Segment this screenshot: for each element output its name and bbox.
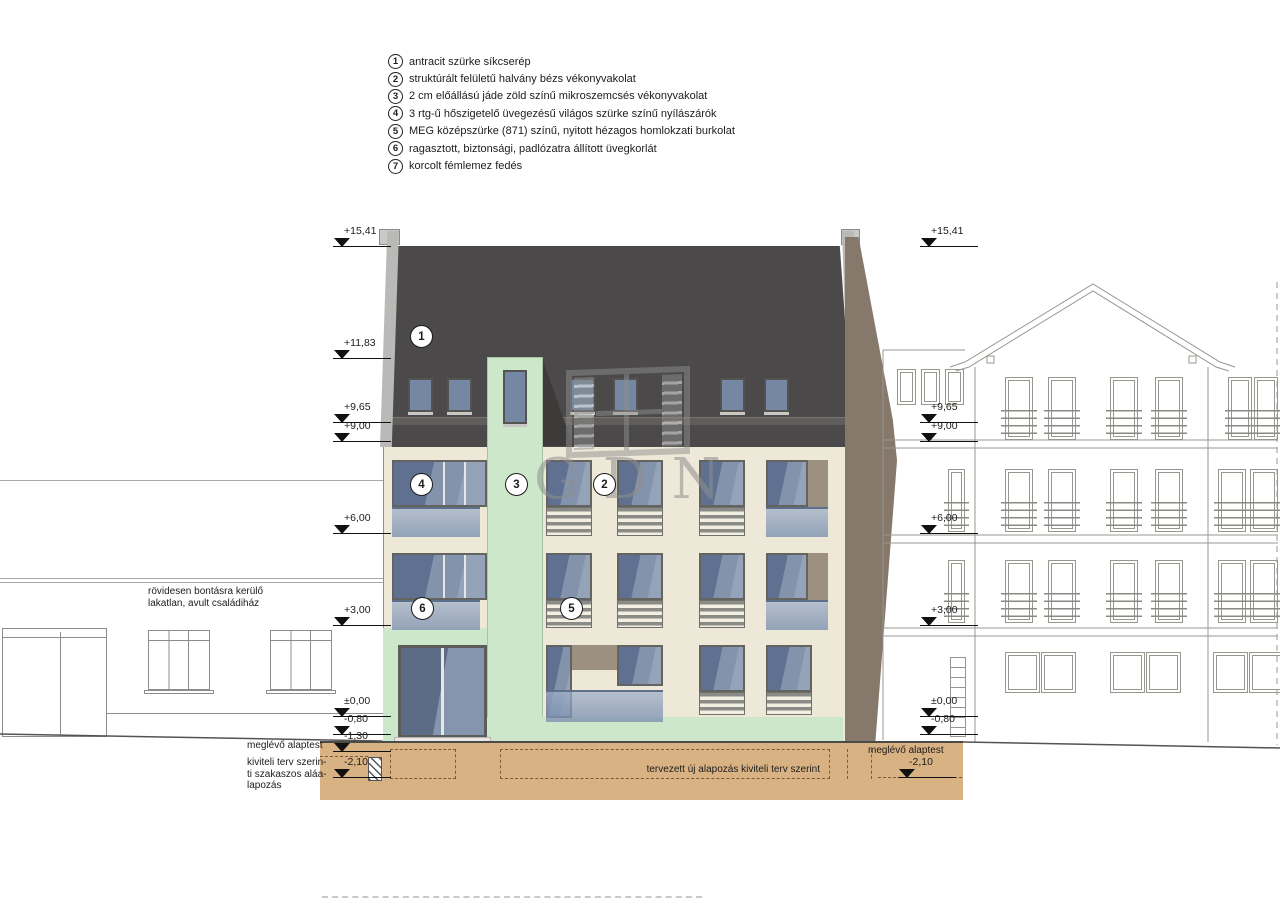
material-callout-6: 6 — [411, 597, 434, 620]
material-callout-1: 1 — [410, 325, 433, 348]
material-callout-3: 3 — [505, 473, 528, 496]
material-callout-2: 2 — [593, 473, 616, 496]
sheet-bottom-dash — [322, 896, 702, 899]
material-callout-5: 5 — [560, 597, 583, 620]
material-callout-4: 4 — [410, 473, 433, 496]
elevation-drawing-canvas: GDN 1antracit szürke síkcserép2struktúrá… — [0, 0, 1280, 904]
material-callouts: 143265 — [0, 0, 1280, 904]
